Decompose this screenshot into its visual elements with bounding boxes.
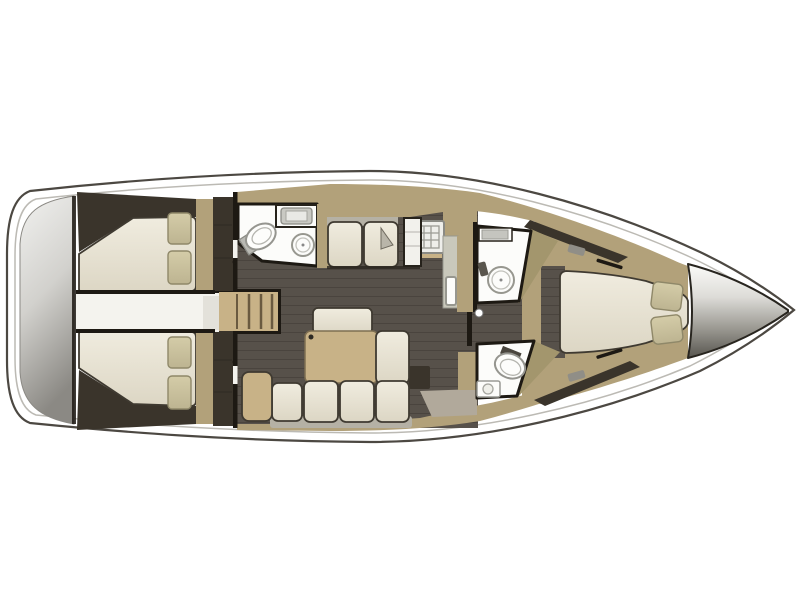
berth-side-shelf	[196, 331, 213, 424]
aft-cabin-starboard	[77, 330, 233, 430]
drain	[302, 244, 305, 247]
sofa-cushion	[376, 381, 409, 422]
sofa-cushion	[272, 383, 302, 421]
corridor-floor	[76, 293, 219, 332]
door-knob	[233, 260, 238, 265]
yacht-floor-plan	[0, 0, 800, 600]
sofa-cushion	[304, 381, 338, 422]
companionway	[215, 289, 281, 334]
galley-cabinet	[443, 202, 477, 238]
table-hinge	[309, 335, 314, 340]
floor-plan-canvas	[0, 0, 800, 600]
pillow	[168, 251, 191, 284]
pillow	[168, 376, 191, 409]
pillow	[650, 314, 683, 344]
cabin-door-opening	[233, 240, 238, 258]
corridor-wall	[76, 329, 215, 333]
swim-platform	[20, 196, 74, 424]
galley-sink	[446, 277, 456, 305]
transom	[20, 196, 76, 424]
head-cabinet	[458, 352, 476, 390]
pillow	[168, 337, 191, 368]
transom-wall	[72, 196, 76, 424]
washbasin	[483, 384, 493, 394]
drain	[500, 279, 503, 282]
corridor-wall	[76, 290, 215, 294]
pillow	[168, 213, 191, 244]
wardrobe	[213, 197, 233, 291]
galley-cabinet	[457, 236, 473, 312]
aft-cabin-port	[77, 192, 233, 293]
engine-corridor	[76, 290, 219, 333]
locker	[404, 218, 421, 266]
sofa-cushion	[340, 381, 374, 422]
door-knob	[475, 309, 483, 317]
door-knob	[233, 360, 238, 365]
bulkhead	[467, 312, 472, 346]
vanity-sink-basin	[286, 211, 307, 221]
berth-side-shelf	[196, 199, 213, 291]
engine-box-shade	[203, 296, 219, 330]
shower-sink	[482, 230, 508, 239]
wardrobe	[213, 331, 233, 426]
sofa-end-cabinet	[242, 372, 272, 421]
cabin-door-opening	[233, 366, 238, 384]
saloon-table	[305, 331, 378, 383]
pillow	[650, 281, 683, 311]
sofa-chaise-cushion	[376, 331, 409, 384]
settee-cushion	[328, 222, 362, 267]
bench-cushion	[313, 308, 372, 334]
nav-seat	[409, 366, 430, 389]
